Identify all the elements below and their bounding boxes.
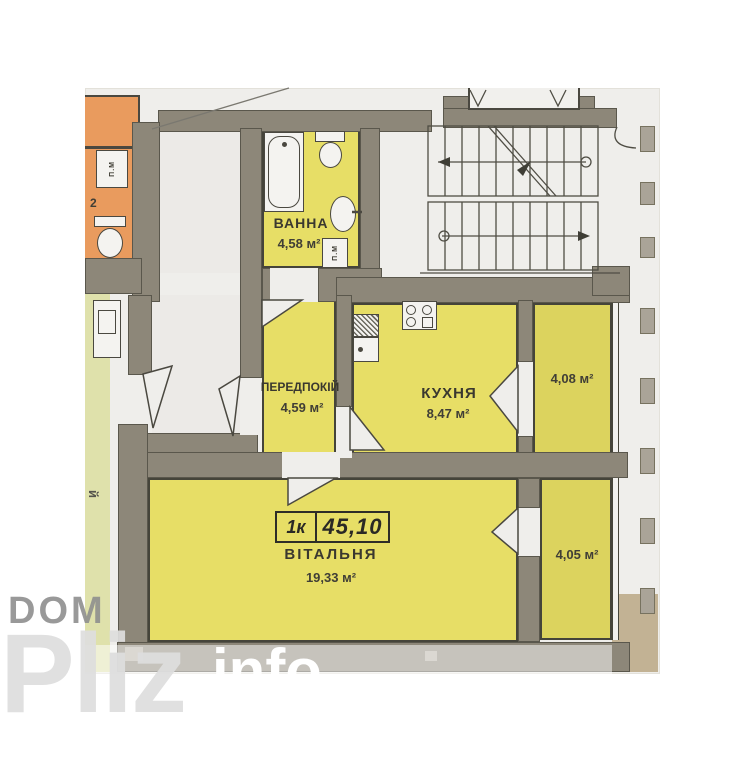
neighbor-toilet-bowl-icon (97, 228, 123, 258)
corridor-shaft (158, 132, 242, 273)
facade-pier (640, 182, 655, 205)
neighbor-washing-machine-icon: П.М (96, 150, 128, 188)
neighbor-toilet-tank-icon (94, 216, 126, 227)
kitchen-label: КУХНЯ (421, 385, 476, 402)
living-label: ВІТАЛЬНЯ (284, 546, 377, 563)
hallway-area: 4,59 м² (281, 400, 324, 415)
door-opening-loggia-top (518, 362, 533, 436)
stove-icon (402, 301, 437, 330)
floor-plan-photo: П.М (0, 0, 749, 768)
room-hallway (262, 300, 336, 458)
facade-pier (640, 448, 655, 474)
facade-pier (640, 588, 655, 614)
bathroom-area: 4,58 м² (278, 236, 321, 251)
wall-segment (147, 452, 628, 478)
wall-segment (518, 478, 540, 508)
living-area: 19,33 м² (306, 570, 356, 585)
door-opening-kitchen (336, 407, 352, 458)
facade-pier (640, 237, 655, 258)
kitchen-counter-icon (353, 314, 379, 337)
loggia-bottom-area: 4,05 м² (556, 547, 599, 562)
washer-label: П.М (332, 245, 339, 261)
toilet-tank-icon (315, 131, 345, 142)
facade-pier (640, 378, 655, 404)
bathroom-label: ВАННА (274, 215, 329, 231)
door-opening-entrance (240, 378, 262, 435)
watermark-brand-main: Pliz (0, 618, 185, 730)
glazing-line (612, 303, 619, 460)
door-opening-loggia-bottom (518, 508, 540, 556)
unit-total-area: 45,10 (317, 513, 388, 541)
kitchen-faucet-icon (358, 347, 363, 352)
washing-machine-icon: П.М (322, 238, 348, 268)
wall-segment (128, 295, 152, 375)
elevator-cabin (468, 88, 580, 110)
door-opening-bathroom (270, 268, 318, 302)
wall-segment (518, 556, 540, 642)
wall-segment (240, 128, 262, 378)
neighbor-sink-icon (98, 310, 116, 334)
washbasin-icon (330, 196, 356, 232)
edge-number-fragment: 2 (90, 196, 97, 210)
kitchen-sink-icon (353, 337, 379, 362)
unit-rooms-count: 1к (277, 513, 317, 541)
wall-segment (360, 128, 380, 270)
watermark-brand-suffix: info (212, 641, 322, 701)
elevator-shaft-wall (443, 108, 617, 128)
bathtub-drain-icon (282, 142, 287, 147)
wall-segment (158, 110, 432, 132)
unit-summary-box: 1к 45,10 (275, 511, 390, 543)
loggia-top-area: 4,08 м² (551, 371, 594, 386)
washer-label: П.М (109, 161, 116, 177)
facade-pier (640, 518, 655, 544)
wall-segment (85, 258, 142, 294)
wall-segment (518, 300, 533, 362)
glazing-line (612, 478, 619, 640)
toilet-bowl-icon (319, 142, 342, 168)
door-opening-living (282, 452, 340, 478)
facade-pier (640, 308, 655, 334)
edge-letter-fragment: й (86, 490, 101, 498)
facade-pier (640, 126, 655, 152)
wall-segment (592, 266, 630, 296)
hallway-label: ПЕРЕДПОКІЙ (261, 380, 339, 394)
wall-segment (336, 277, 630, 303)
entrance-landing (152, 295, 240, 433)
kitchen-area: 8,47 м² (427, 406, 470, 421)
